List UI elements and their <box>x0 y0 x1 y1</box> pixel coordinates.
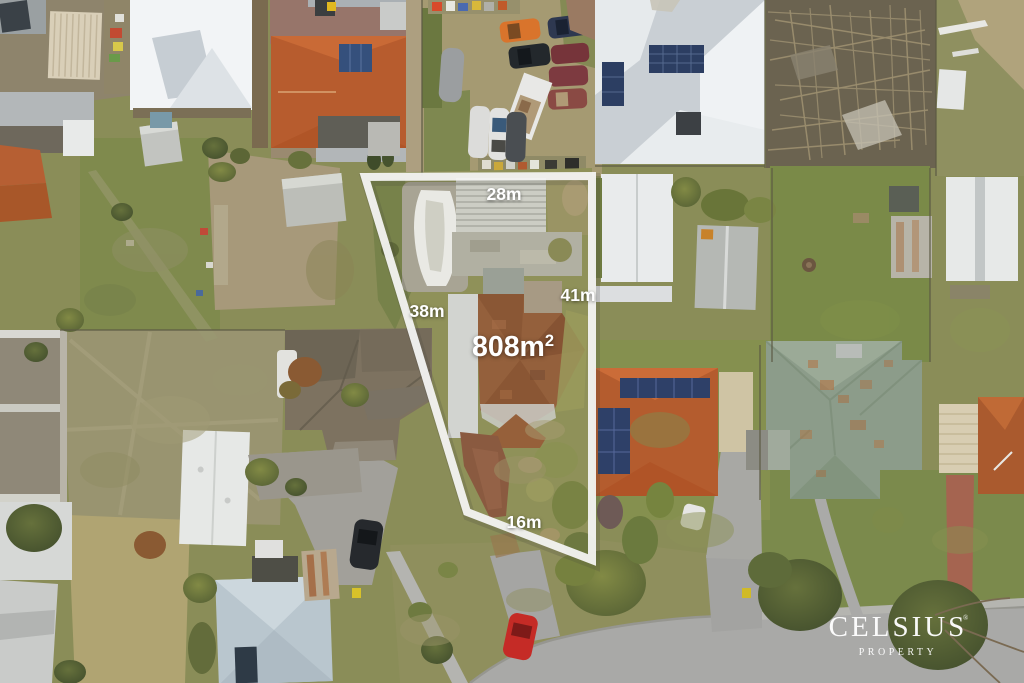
svg-text:808m2: 808m2 <box>472 331 554 363</box>
svg-text:PROPERTY: PROPERTY <box>859 647 938 658</box>
svg-text:16m: 16m <box>506 512 541 532</box>
svg-text:®: ® <box>963 614 969 622</box>
svg-text:CELSIUS: CELSIUS <box>829 611 968 643</box>
svg-text:41m: 41m <box>560 285 595 305</box>
svg-text:28m: 28m <box>486 184 521 204</box>
svg-text:38m: 38m <box>409 301 444 321</box>
